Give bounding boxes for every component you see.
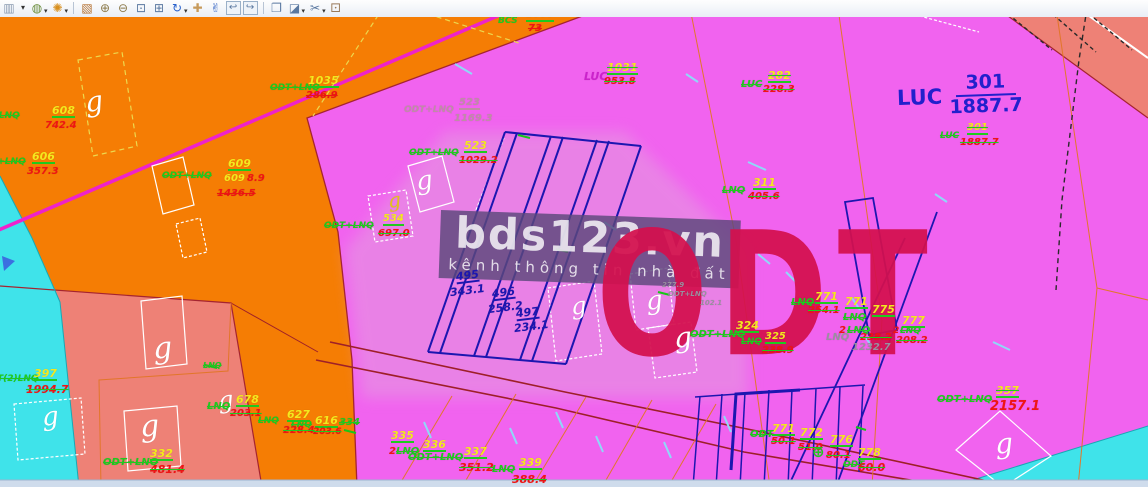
rotate-view-icon[interactable]: ↻: [169, 0, 185, 16]
luc-parcel-number: 301: [965, 72, 1005, 93]
window-list-dropdown[interactable]: ▾: [19, 0, 27, 16]
view-cube-icon[interactable]: ⚀: [328, 0, 344, 16]
rotate-view-icon-dropdown[interactable]: ▾: [184, 7, 188, 15]
toolbar-separator: [263, 2, 264, 14]
window-area-icon[interactable]: ⊡: [133, 0, 149, 16]
clip-volume-icon-dropdown[interactable]: ▾: [302, 7, 306, 15]
view-previous-icon[interactable]: ↩: [226, 1, 241, 15]
update-view-icon[interactable]: ▧: [79, 0, 95, 16]
luc-parcel-label: LUC 301 1887.7: [896, 72, 1023, 120]
copy-view-icon[interactable]: ❐: [269, 0, 285, 16]
luc-parcel-area: 1887.7: [949, 96, 1023, 118]
fit-view-icon[interactable]: ⊞: [151, 0, 167, 16]
zoom-out-icon[interactable]: ⊖: [115, 0, 131, 16]
view-next-icon[interactable]: ↪: [243, 1, 258, 15]
luc-code: LUC: [897, 85, 943, 111]
zone-label-odt: ODT: [596, 210, 938, 382]
toolbar-separator: [73, 2, 74, 14]
toolbar: ▥▾◍▾✺▾▧⊕⊖⊡⊞↻▾✚✌↩↪❐◪▾✂▾⚀: [0, 0, 1148, 17]
view-display-mode-icon-dropdown[interactable]: ▾: [44, 7, 48, 15]
window-list-icon[interactable]: ▥: [1, 0, 17, 16]
map-application-window: bds123.vn kênh thông tin nhà đất ODT LUC…: [0, 0, 1148, 487]
clip-volume-icon[interactable]: ◪: [287, 0, 303, 16]
pan-view-icon[interactable]: ✚: [190, 0, 206, 16]
clip-mask-icon[interactable]: ✂: [307, 0, 323, 16]
view-brightness-icon-dropdown[interactable]: ▾: [65, 7, 69, 15]
zoom-in-icon[interactable]: ⊕: [97, 0, 113, 16]
view-display-mode-icon[interactable]: ◍: [29, 0, 45, 16]
walk-view-icon[interactable]: ✌: [208, 0, 224, 16]
bottom-strip: [0, 480, 1148, 487]
view-brightness-icon[interactable]: ✺: [50, 0, 66, 16]
clip-mask-icon-dropdown[interactable]: ▾: [322, 7, 326, 15]
